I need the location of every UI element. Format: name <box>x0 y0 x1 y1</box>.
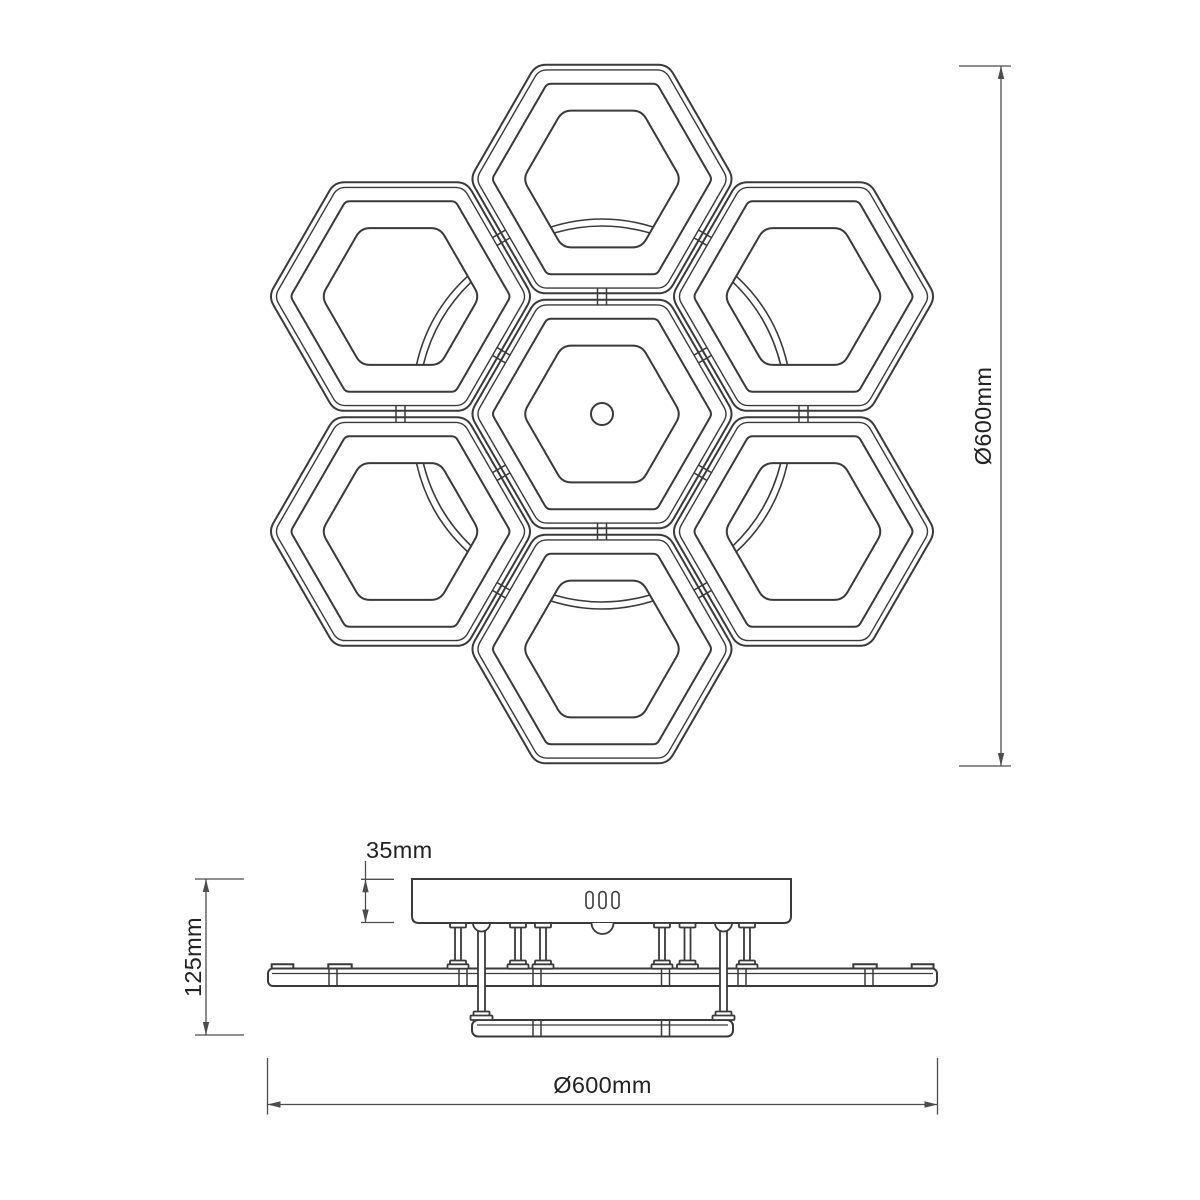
short-post-cap <box>654 923 670 928</box>
lens-arc <box>410 272 468 364</box>
short-post-pad <box>448 964 469 968</box>
hex-diffuser-frame <box>525 581 679 718</box>
lens-arc <box>736 463 794 555</box>
short-post-shaft <box>659 923 665 962</box>
dim-label-total-height: 125mm <box>180 917 206 997</box>
short-post-cap <box>510 923 526 928</box>
dim-arrowhead <box>998 66 1004 79</box>
drawing-page: Ø600mm Ø600mm 125mm 35mm <box>0 0 1200 1200</box>
lens-arc-group <box>410 272 473 367</box>
hex-diffuser-frame <box>324 228 478 365</box>
lens-arc-group <box>551 219 653 233</box>
hex-diffuser-frame <box>727 228 881 365</box>
dim-label-diameter-right: Ø600mm <box>970 367 996 465</box>
hex-diffuser-frame <box>525 346 679 483</box>
lens-arc <box>554 226 650 233</box>
center-dome <box>592 923 614 934</box>
lens-arc <box>554 595 650 602</box>
long-post-shaft <box>720 927 727 1013</box>
lower-panel-edge <box>472 1020 733 1037</box>
lens-arc <box>410 463 468 555</box>
lens-arc <box>733 463 787 550</box>
canopy-profile <box>412 879 791 923</box>
short-post-shaft <box>685 923 691 962</box>
short-post-pad <box>737 964 758 968</box>
side-view-profile <box>268 879 937 1037</box>
short-post-pad <box>652 964 673 968</box>
short-post-cap <box>739 923 755 928</box>
short-post-shaft <box>744 923 750 962</box>
hex-diffuser-frame <box>324 463 478 600</box>
dim-arrowhead <box>925 1101 938 1107</box>
short-post-pad <box>677 964 698 968</box>
dim-arrowhead <box>362 910 368 923</box>
post-dome <box>715 923 732 932</box>
short-post-pad <box>533 964 554 968</box>
lens-arc <box>417 278 471 365</box>
dim-arrowhead <box>203 879 209 892</box>
short-post-pad <box>508 964 529 968</box>
lens-arc-group <box>551 595 653 609</box>
short-post-cap <box>535 923 551 928</box>
top-view-honeycomb <box>271 65 933 764</box>
lens-arc <box>733 278 787 365</box>
technical-drawing-canvas: Ø600mm Ø600mm 125mm 35mm <box>0 0 1200 1200</box>
dim-label-canopy-height: 35mm <box>366 837 433 863</box>
short-post-shaft <box>540 923 546 962</box>
hex-panel-layer-edge <box>268 969 937 987</box>
lens-arc-group <box>410 460 473 555</box>
short-post-cap <box>450 923 466 928</box>
lens-arc <box>417 463 471 550</box>
lens-arc-group <box>731 272 794 367</box>
long-post-shaft <box>478 927 485 1013</box>
long-post-pad <box>713 1016 735 1021</box>
short-post-cap <box>680 923 696 928</box>
post-dome <box>473 923 490 932</box>
dim-arrowhead <box>998 753 1004 766</box>
short-post-shaft <box>515 923 521 962</box>
mount-hole <box>591 403 613 425</box>
long-post-pad <box>471 1016 493 1021</box>
hex-diffuser-frame <box>727 463 881 600</box>
lens-arc-group <box>731 460 794 555</box>
hex-diffuser-frame <box>525 111 679 248</box>
dim-arrowhead <box>362 879 368 892</box>
dim-label-diameter-bottom: Ø600mm <box>553 1072 651 1098</box>
short-post-shaft <box>455 923 461 962</box>
lens-arc <box>736 272 794 364</box>
dim-arrowhead <box>268 1101 281 1107</box>
dim-arrowhead <box>203 1022 209 1035</box>
